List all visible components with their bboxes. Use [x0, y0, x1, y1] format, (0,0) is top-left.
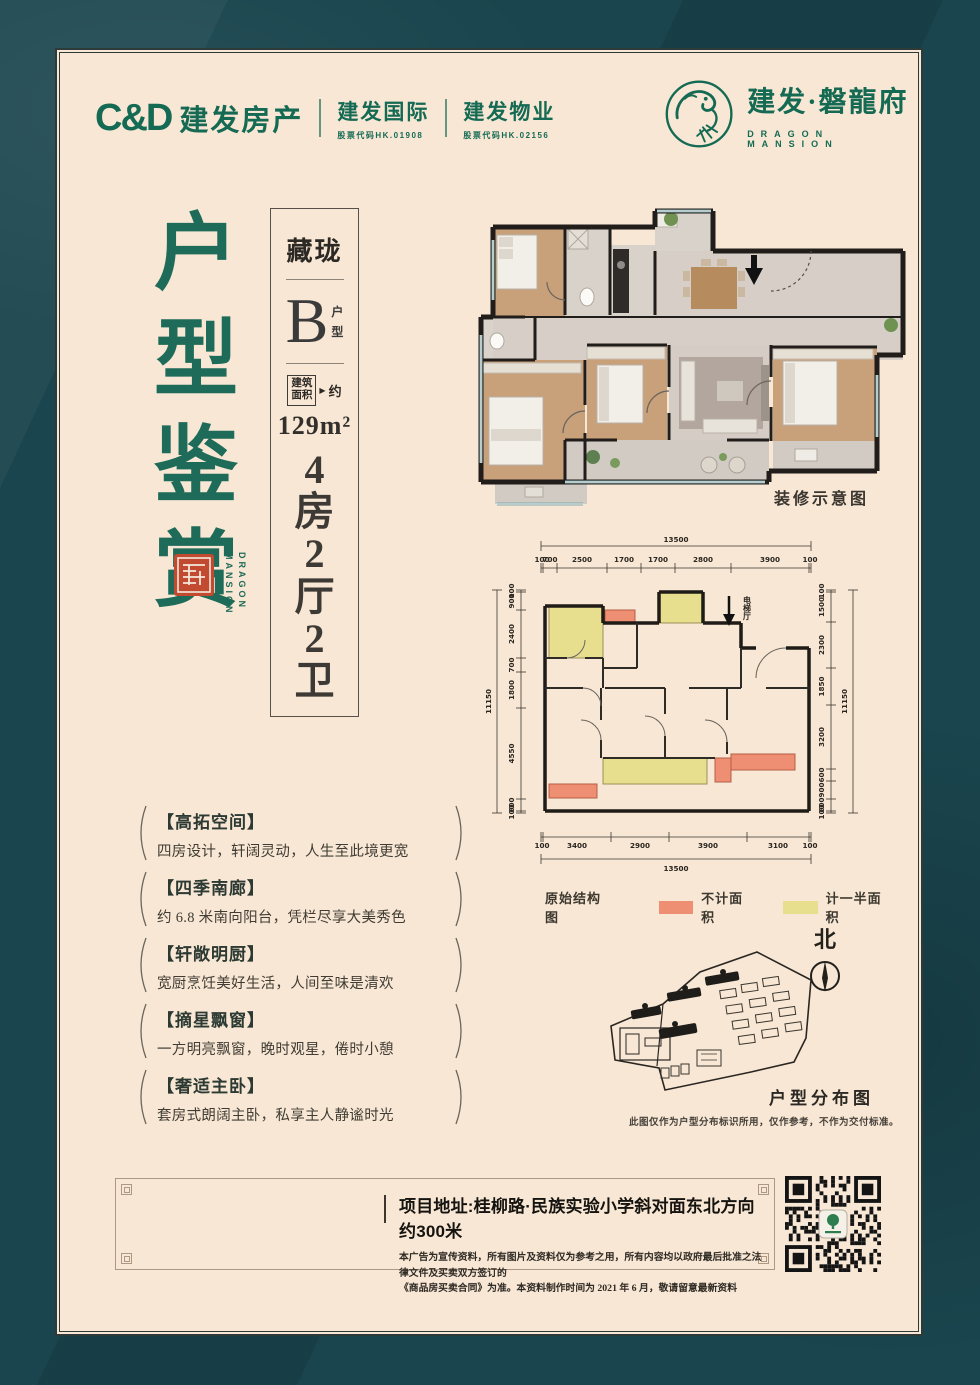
footer-divider [384, 1195, 386, 1223]
render-caption: 装修示意图 [774, 485, 869, 509]
selling-point-title: 【摘星飘窗】 [157, 1006, 445, 1031]
svg-text:1850: 1850 [817, 676, 826, 696]
area-label-line2: 面积 [291, 390, 312, 401]
svg-text:2400: 2400 [507, 624, 516, 644]
brand-intl-group: 建发国际 股票代码HK.01908 [337, 96, 429, 141]
dimension-annotations: 1350010070025001700170028003900100100340… [484, 535, 858, 873]
svg-text:3900: 3900 [698, 841, 718, 850]
svg-text:100: 100 [534, 841, 549, 850]
area-label-row: 建筑 面积 ▶ 约 [271, 375, 358, 406]
site-map-block: 北 [605, 922, 945, 1152]
furnished-floorplan-drawing [465, 205, 915, 517]
svg-text:1800: 1800 [507, 680, 516, 700]
selling-point-desc: 四房设计，轩阔灵动，人生至此境更宽 [157, 840, 445, 861]
project-name: 建发·磐龍府 [747, 80, 921, 120]
svg-text:900: 900 [817, 782, 826, 797]
brand-intl-stock-code: 股票代码HK.01908 [337, 130, 423, 141]
dragon-logo-icon [663, 76, 735, 152]
right-paren-decoration [454, 1069, 467, 1125]
seal-stamp-icon [173, 552, 215, 598]
footer-info-bar: 项目地址:桂柳路·民族实验小学斜对面东北方向约300米 本广告为宣传资料，所有图… [115, 1178, 775, 1270]
svg-text:2500: 2500 [572, 555, 592, 564]
not-counted-label: 不计面积 [701, 888, 755, 926]
header-divider [319, 99, 321, 137]
selling-point-desc: 宽厨烹饪美好生活，人间至味是清欢 [157, 972, 445, 993]
svg-text:3200: 3200 [817, 727, 826, 747]
poster-panel: C&D 建发房产 建发国际 股票代码HK.01908 建发物业 股票代码HK.0… [55, 48, 923, 1336]
unit-type-suffix-char: 户 [331, 303, 343, 320]
selling-point-title: 【轩敞明厨】 [157, 940, 445, 965]
svg-text:2300: 2300 [817, 635, 826, 655]
qr-code [785, 1176, 881, 1272]
seal-block: DRAGON MANSION [173, 552, 248, 648]
footer-disclaimer: 本广告为宣传资料，所有图片及资料仅为参考之用，所有内容均以政府最后批准之法律文件… [399, 1250, 765, 1297]
selling-point-desc: 套房式朗阔主卧，私享主人静谧时光 [157, 1104, 445, 1125]
svg-text:700: 700 [507, 657, 516, 672]
area-label-box: 建筑 面积 [287, 375, 316, 406]
area-label-line1: 建筑 [291, 378, 312, 389]
header-divider [445, 99, 447, 137]
furnished-floorplan: 装修示意图 [465, 205, 915, 517]
project-logo-block: 建发·磐龍府 DRAGON MANSION [663, 76, 921, 152]
right-paren-decoration [454, 937, 467, 993]
left-paren-decoration [135, 1069, 148, 1125]
svg-text:13500: 13500 [663, 535, 688, 544]
divider [286, 279, 344, 280]
site-map-caption: 户型分布图 [769, 1084, 874, 1109]
svg-text:4550: 4550 [507, 743, 516, 763]
right-paren-decoration [454, 1003, 467, 1059]
left-paren-decoration [135, 805, 148, 861]
svg-text:700: 700 [542, 555, 557, 564]
seal-word-dragon: DRAGON [237, 552, 247, 610]
svg-text:600: 600 [817, 767, 826, 782]
half-counted-label: 计一半面积 [826, 888, 893, 926]
right-paren-decoration [454, 871, 467, 927]
left-paren-decoration [135, 937, 148, 993]
svg-text:100: 100 [817, 804, 826, 819]
elevator-label: 电梯厅 [743, 595, 752, 621]
area-approx-label: 约 [329, 381, 342, 400]
unit-type-row: B 户 型 [271, 291, 358, 352]
unit-info-card: 藏珑 B 户 型 建筑 面积 ▶ 约 129m² 4房2厅2卫 [270, 208, 359, 717]
project-address: 项目地址:桂柳路·民族实验小学斜对面东北方向约300米 [399, 1192, 765, 1242]
selling-point-title: 【奢适主卧】 [157, 1072, 445, 1097]
qr-code-image [785, 1176, 881, 1272]
seal-english-text: DRAGON MANSION [222, 552, 248, 648]
structural-floorplan: 电梯厅 135001007002500170017002800390010010… [479, 528, 877, 882]
divider [286, 363, 344, 364]
corner-ornament [121, 1184, 132, 1195]
svg-text:3900: 3900 [760, 555, 780, 564]
unit-type-letter: B [286, 291, 329, 352]
svg-text:900: 900 [507, 593, 516, 608]
svg-text:1700: 1700 [648, 555, 668, 564]
svg-text:2800: 2800 [693, 555, 713, 564]
svg-text:11150: 11150 [484, 689, 493, 714]
brand-prop-label: 建发物业 [463, 96, 555, 126]
brand-prop-group: 建发物业 股票代码HK.02156 [463, 96, 555, 141]
svg-text:13500: 13500 [663, 864, 688, 873]
svg-text:3400: 3400 [567, 841, 587, 850]
arrow-icon: ▶ [319, 386, 325, 395]
seal-word-mansion: MANSION [224, 552, 234, 616]
svg-text:3100: 3100 [768, 841, 788, 850]
svg-text:100: 100 [802, 841, 817, 850]
svg-text:11150: 11150 [840, 689, 849, 714]
selling-point-title: 【四季南廊】 [157, 874, 445, 899]
brand-intl-label: 建发国际 [337, 96, 429, 126]
right-paren-decoration [454, 805, 467, 861]
half-counted-swatch [783, 901, 818, 914]
svg-text:1500: 1500 [817, 597, 826, 617]
cnd-logo: C&D [95, 97, 171, 140]
selling-points-list: 【高拓空间】 四房设计，轩阔灵动，人生至此境更宽 【四季南廊】 约 6.8 米南… [135, 807, 467, 1137]
footer-disclaimer-line1: 本广告为宣传资料，所有图片及资料仅为参考之用，所有内容均以政府最后批准之法律文件… [399, 1252, 761, 1279]
selling-point-item: 【四季南廊】 约 6.8 米南向阳台，凭栏尽享大美秀色 [135, 873, 467, 923]
selling-point-item: 【奢适主卧】 套房式朗阔主卧，私享主人静谧时光 [135, 1071, 467, 1121]
brand-prop-stock-code: 股票代码HK.02156 [463, 130, 549, 141]
original-structure-label: 原始结构图 [545, 888, 613, 926]
unit-type-suffix: 户 型 [331, 303, 343, 340]
unit-type-suffix-char: 型 [331, 323, 343, 340]
footer-disclaimer-line2: 《商品房买卖合同》为准。本资料制作时间为 2021 年 6 月，敬请留意最新资料 [399, 1283, 737, 1294]
left-paren-decoration [135, 871, 148, 927]
area-value: 129m² [271, 411, 358, 441]
unit-series-name: 藏珑 [271, 231, 358, 268]
corner-ornament [121, 1253, 132, 1264]
svg-text:100: 100 [817, 583, 826, 598]
brand-main-label: 建发房产 [179, 97, 303, 139]
poster-background: { "colors": { "teal_bg": "#1a454e", "cre… [0, 0, 980, 1385]
footer-text-block: 项目地址:桂柳路·民族实验小学斜对面东北方向约300米 本广告为宣传资料，所有图… [399, 1192, 765, 1297]
legend-item-half-counted: 计一半面积 [783, 888, 893, 926]
svg-text:1700: 1700 [614, 555, 634, 564]
svg-text:2900: 2900 [630, 841, 650, 850]
project-name-en: DRAGON MANSION [747, 129, 921, 149]
selling-point-desc: 约 6.8 米南向阳台，凭栏尽享大美秀色 [157, 906, 445, 927]
unit-layout-vertical: 4房2厅2卫 [294, 449, 336, 702]
selling-point-title: 【高拓空间】 [157, 808, 445, 833]
selling-point-item: 【轩敞明厨】 宽厨烹饪美好生活，人间至味是清欢 [135, 939, 467, 989]
svg-text:100: 100 [802, 555, 817, 564]
selling-point-item: 【摘星飘窗】 一方明亮飘窗，晚时观星，倦时小憩 [135, 1005, 467, 1055]
plan-legend: 原始结构图 不计面积 计一半面积 [545, 888, 921, 926]
left-paren-decoration [135, 1003, 148, 1059]
legend-item-not-counted: 不计面积 [659, 888, 755, 926]
project-names: 建发·磐龍府 DRAGON MANSION [747, 80, 921, 149]
structural-floorplan-drawing: 电梯厅 135001007002500170017002800390010010… [479, 528, 877, 882]
header-logos: C&D 建发房产 建发国际 股票代码HK.01908 建发物业 股票代码HK.0… [95, 90, 555, 146]
selling-point-desc: 一方明亮飘窗，晚时观星，倦时小憩 [157, 1038, 445, 1059]
selling-point-item: 【高拓空间】 四房设计，轩阔灵动，人生至此境更宽 [135, 807, 467, 857]
site-map-drawing [605, 942, 823, 1094]
not-counted-swatch [659, 901, 694, 914]
svg-text:100: 100 [507, 804, 516, 819]
site-map-disclaimer: 此图仅作为户型分布标识所用，仅作参考，不作为交付标准。 [629, 1114, 899, 1128]
